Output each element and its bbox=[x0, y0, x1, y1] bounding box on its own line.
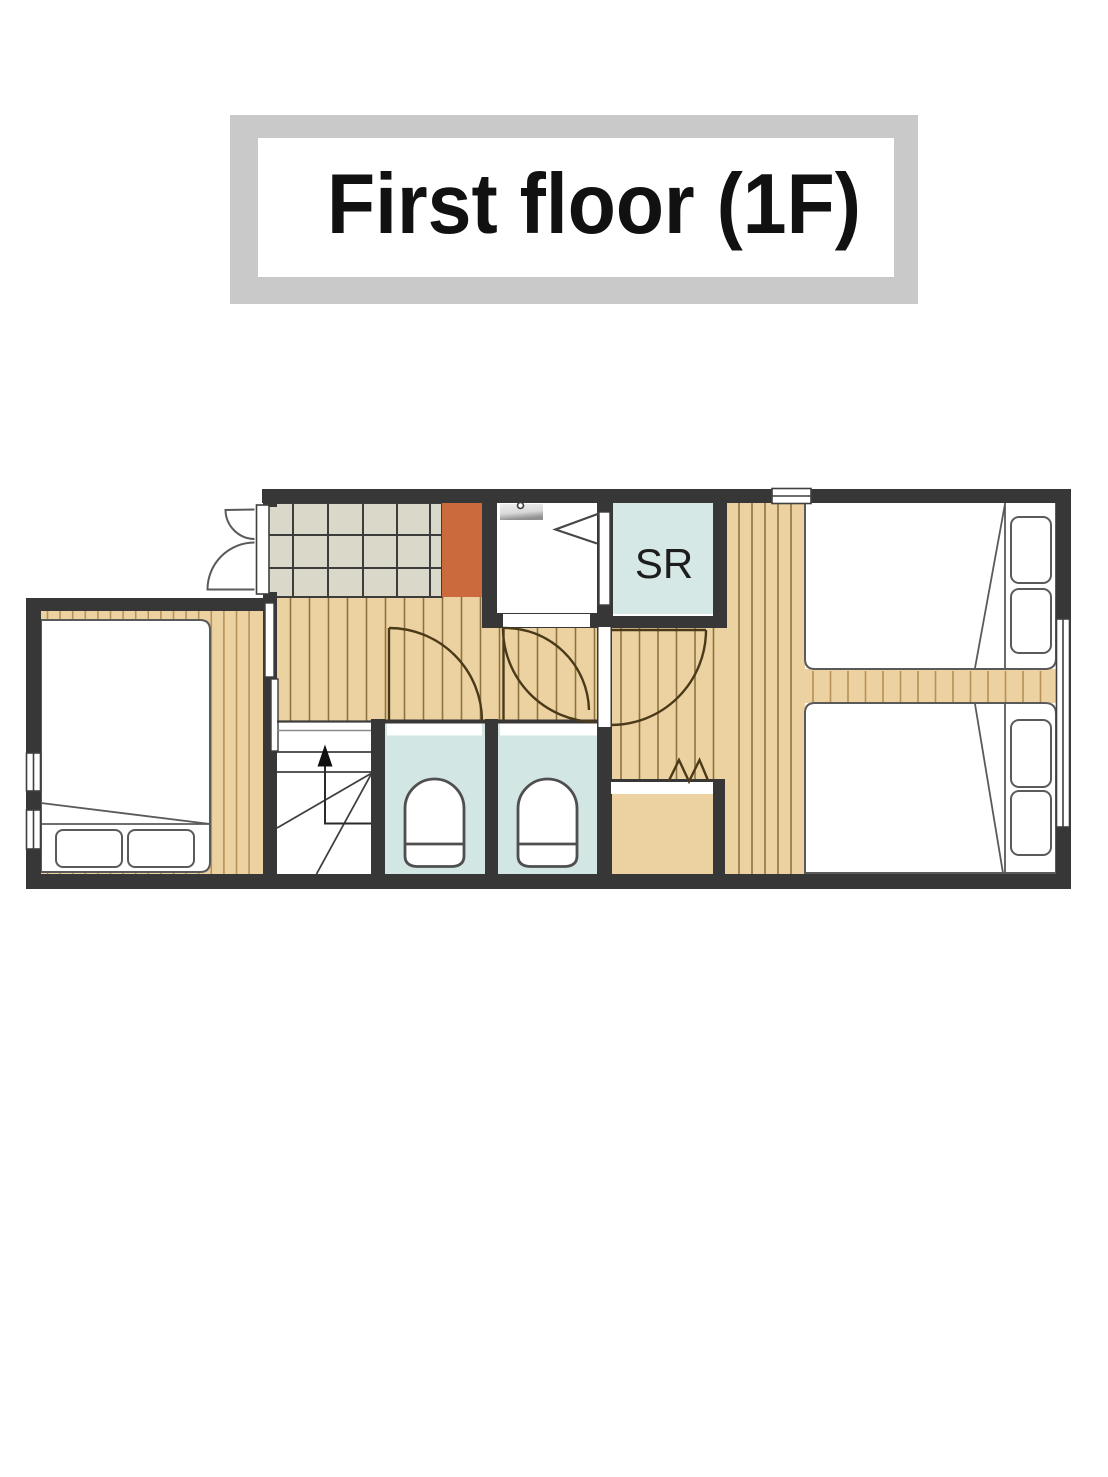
svg-text:First floor (1F): First floor (1F) bbox=[327, 157, 861, 252]
svg-text:SR: SR bbox=[635, 540, 693, 587]
